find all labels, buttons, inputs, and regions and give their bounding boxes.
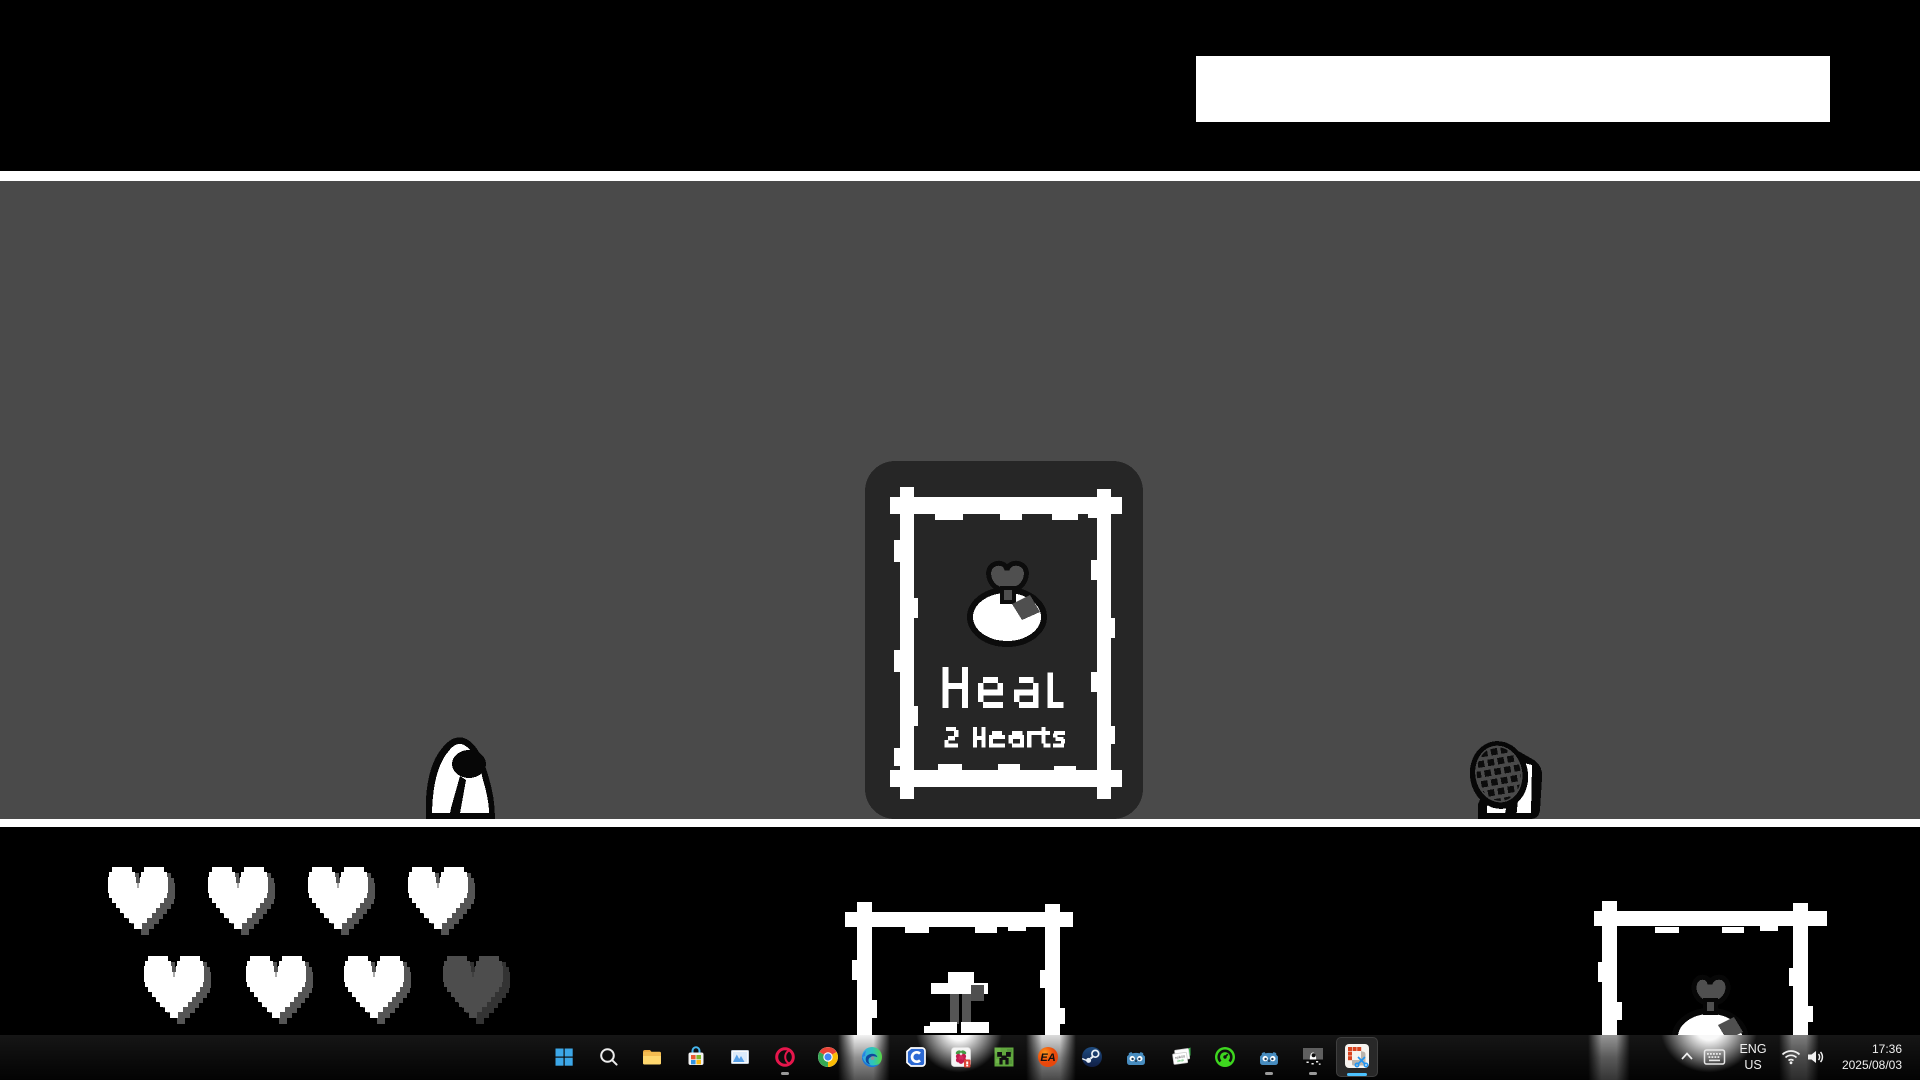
svg-text:EA: EA <box>1040 1052 1055 1064</box>
